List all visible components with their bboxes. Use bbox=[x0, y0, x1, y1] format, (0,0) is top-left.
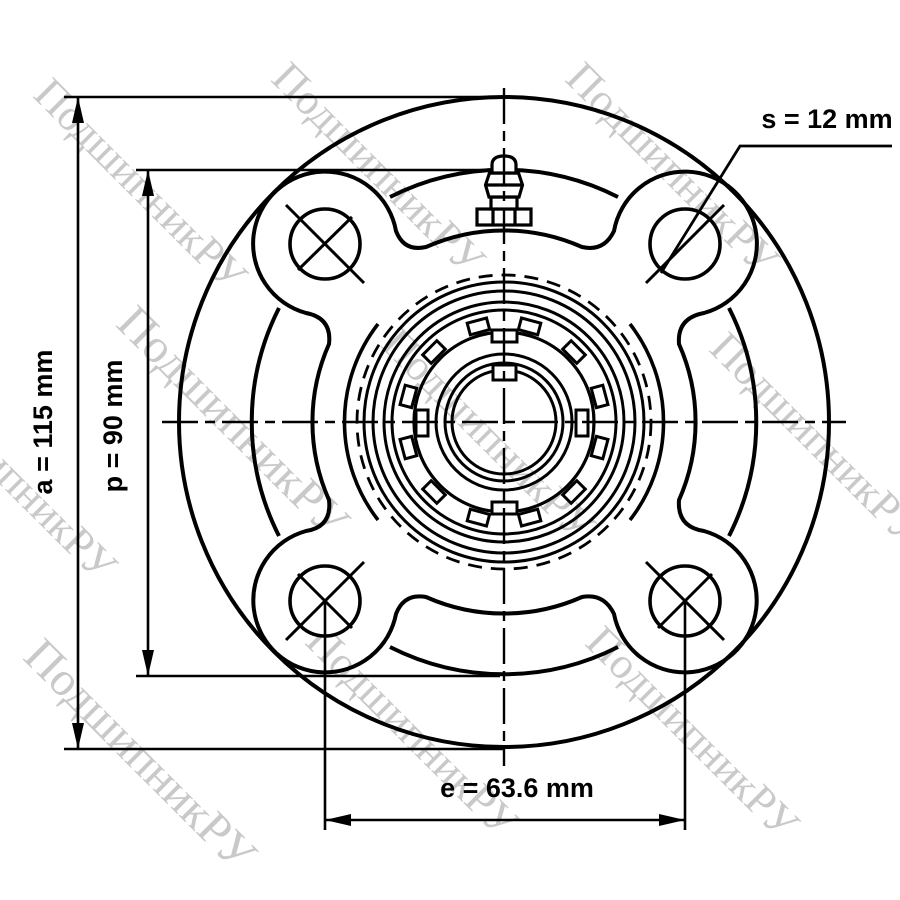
dim-a-arrow-up bbox=[72, 97, 84, 123]
dim-e-label: e = 63.6 mm bbox=[440, 773, 594, 803]
dim-p-arrow-up bbox=[142, 170, 154, 196]
technical-drawing-canvas: ПодшипникРУ ПодшипникРУ ПодшипникРУ Подш… bbox=[0, 0, 900, 900]
bearing-unit-drawing: a = 115 mm p = 90 mm e = 63.6 mm s = 12 … bbox=[0, 0, 900, 900]
dim-e-arrow-left bbox=[325, 814, 351, 826]
dim-s-label: s = 12 mm bbox=[761, 104, 892, 134]
dim-p-arrow-down bbox=[142, 650, 154, 676]
dim-a-arrow-down bbox=[72, 723, 84, 749]
dim-a-label: a = 115 mm bbox=[28, 350, 58, 495]
dim-p-label: p = 90 mm bbox=[98, 360, 128, 493]
dim-e-arrow-right bbox=[659, 814, 685, 826]
